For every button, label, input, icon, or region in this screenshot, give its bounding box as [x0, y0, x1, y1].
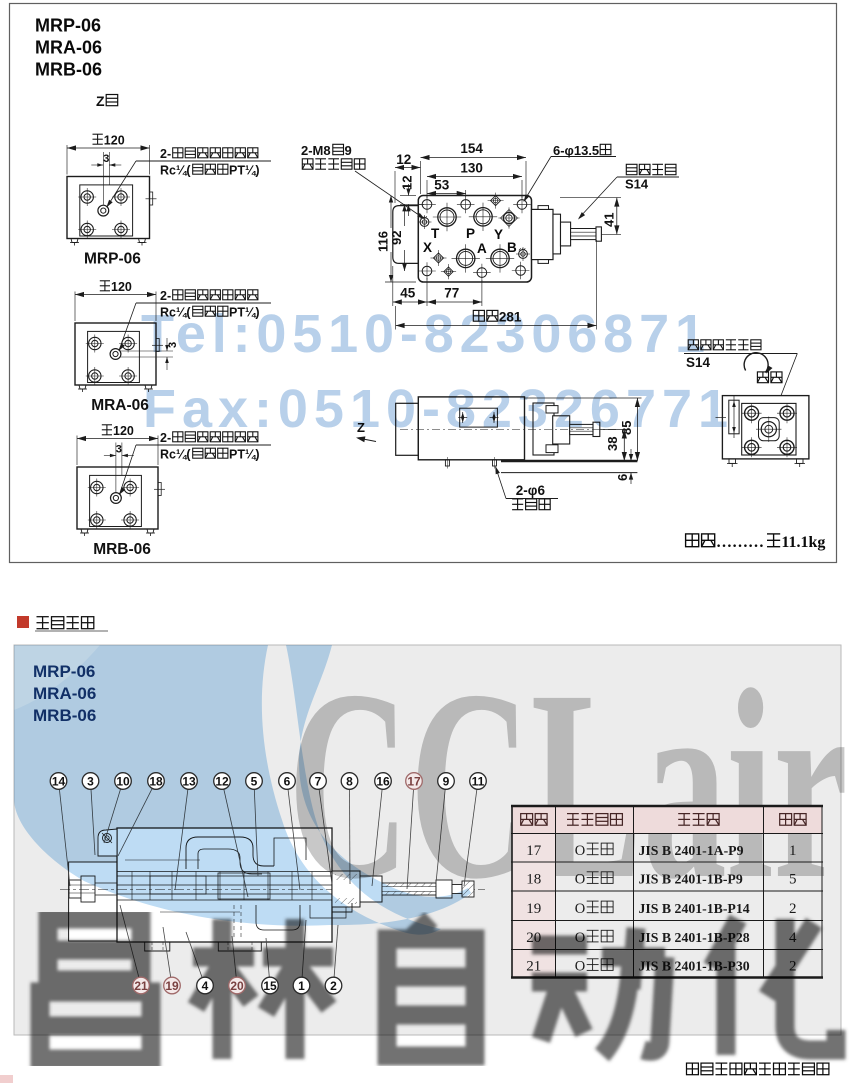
svg-text:16: 16	[376, 774, 390, 788]
svg-text:12: 12	[400, 176, 415, 190]
svg-text:O: O	[575, 843, 585, 859]
svg-text:1: 1	[298, 979, 305, 993]
svg-text:3: 3	[116, 444, 122, 456]
svg-text:X: X	[423, 240, 432, 255]
svg-text:MRA-06: MRA-06	[91, 397, 149, 414]
svg-text:O: O	[575, 901, 585, 917]
svg-text:41: 41	[602, 213, 617, 227]
svg-text:7: 7	[315, 774, 322, 788]
svg-text:12: 12	[396, 152, 411, 167]
svg-text:1: 1	[789, 843, 797, 859]
svg-text:77: 77	[444, 286, 459, 301]
svg-text:MRB-06: MRB-06	[35, 60, 102, 80]
svg-text:T: T	[431, 226, 440, 241]
svg-text:Rc¼(: Rc¼(	[160, 448, 191, 462]
svg-text:21: 21	[134, 979, 148, 993]
svg-text:O: O	[575, 872, 585, 888]
svg-text:Y: Y	[494, 227, 503, 242]
svg-text:18: 18	[149, 774, 163, 788]
svg-text:Z: Z	[96, 93, 105, 109]
svg-text:12: 12	[215, 774, 229, 788]
svg-text:6: 6	[615, 474, 630, 481]
svg-text:8: 8	[346, 774, 353, 788]
svg-text:2-M8: 2-M8	[301, 143, 331, 158]
svg-text:17: 17	[407, 774, 421, 788]
svg-text:PT¼): PT¼)	[229, 448, 260, 462]
svg-text:Rc¼(: Rc¼(	[160, 164, 191, 178]
svg-text:B: B	[507, 240, 517, 255]
svg-text:O: O	[575, 959, 585, 975]
svg-text:P: P	[466, 226, 475, 241]
svg-text:92: 92	[389, 231, 404, 245]
svg-text:45: 45	[400, 286, 416, 301]
svg-text:10: 10	[116, 774, 130, 788]
svg-text:11.1kg: 11.1kg	[781, 534, 825, 551]
svg-text:5: 5	[789, 872, 797, 888]
svg-text:A: A	[477, 241, 487, 256]
svg-text:154: 154	[460, 141, 483, 156]
svg-text:14: 14	[52, 774, 66, 788]
svg-text:Fax:0510-82326771: Fax:0510-82326771	[143, 379, 728, 439]
svg-text:MRP-06: MRP-06	[35, 16, 101, 36]
svg-text:MRP-06: MRP-06	[84, 251, 141, 268]
svg-text:17: 17	[526, 843, 542, 859]
svg-text:19: 19	[165, 979, 179, 993]
svg-text:9: 9	[443, 774, 450, 788]
svg-text:S14: S14	[625, 177, 649, 192]
svg-text:3: 3	[103, 153, 109, 165]
svg-text:5: 5	[251, 774, 258, 788]
svg-text:2-: 2-	[160, 289, 171, 303]
svg-text:2: 2	[789, 901, 797, 917]
svg-text:120: 120	[104, 134, 125, 148]
svg-text:PT¼): PT¼)	[229, 164, 260, 178]
svg-text:4: 4	[202, 979, 209, 993]
svg-text:2-: 2-	[160, 147, 171, 161]
svg-text:JIS B 2401-1A-P9: JIS B 2401-1A-P9	[639, 843, 744, 858]
svg-text:2-φ6: 2-φ6	[516, 483, 546, 498]
svg-text:3: 3	[87, 774, 94, 788]
svg-text:JIS B 2401-1B-P9: JIS B 2401-1B-P9	[639, 872, 743, 887]
svg-text:9: 9	[345, 143, 352, 158]
svg-text:130: 130	[460, 161, 483, 176]
svg-text:Tel:0510-82306871: Tel:0510-82306871	[141, 304, 705, 364]
svg-text:11: 11	[472, 774, 485, 788]
svg-text:21: 21	[526, 959, 541, 975]
svg-text:6: 6	[284, 774, 291, 788]
svg-text:………: ………	[716, 534, 764, 551]
svg-text:13: 13	[182, 774, 196, 788]
svg-text:18: 18	[526, 872, 541, 888]
svg-text:6-φ13.5: 6-φ13.5	[553, 143, 599, 158]
svg-text:20: 20	[230, 979, 244, 993]
svg-text:120: 120	[111, 280, 132, 294]
svg-text:15: 15	[263, 979, 277, 993]
svg-text:MRA-06: MRA-06	[35, 38, 102, 58]
svg-text:19: 19	[526, 901, 541, 917]
svg-text:53: 53	[434, 178, 450, 193]
svg-text:JIS B 2401-1B-P14: JIS B 2401-1B-P14	[639, 901, 750, 916]
svg-text:MRB-06: MRB-06	[93, 541, 151, 558]
svg-text:2: 2	[330, 979, 337, 993]
svg-text:120: 120	[113, 424, 134, 438]
